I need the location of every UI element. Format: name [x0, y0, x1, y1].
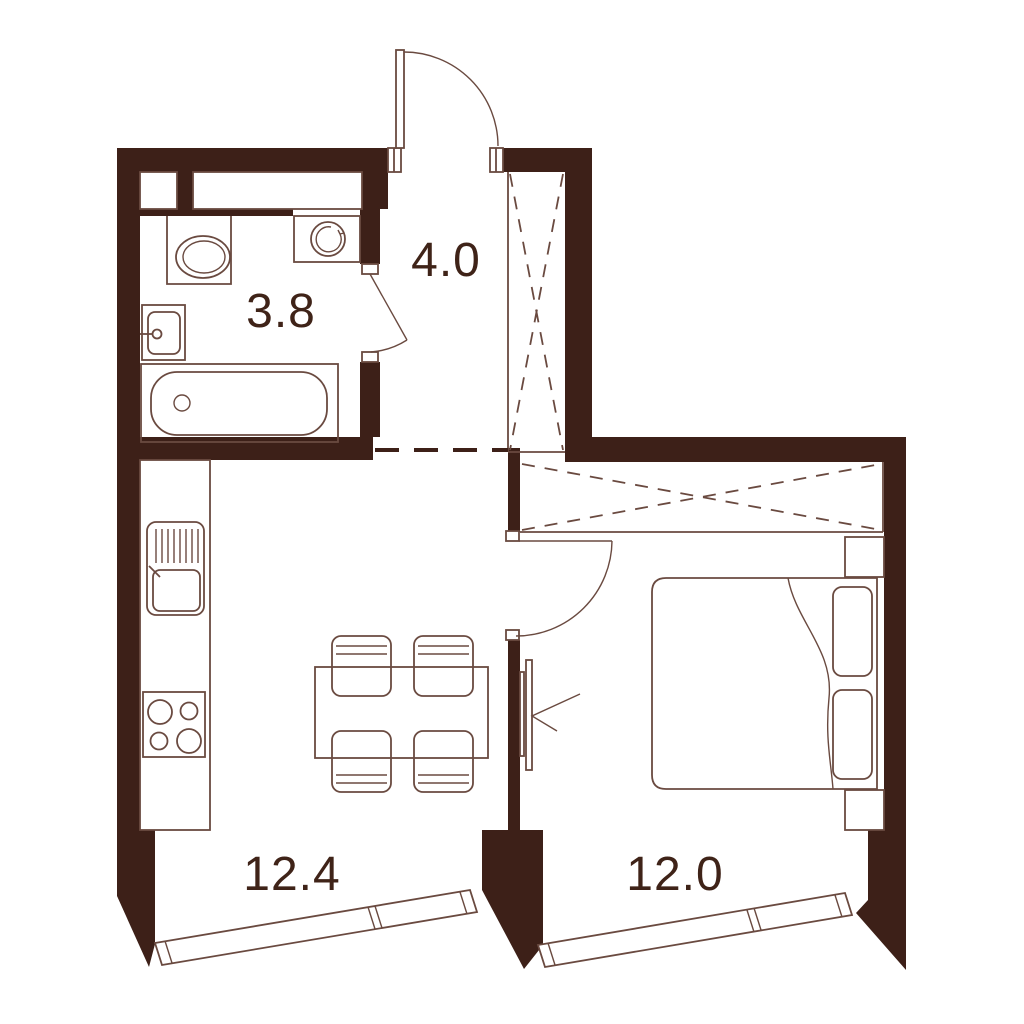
- door-frame: [362, 264, 378, 274]
- entry-door: [388, 50, 503, 172]
- faucet: [153, 330, 162, 339]
- stove: [143, 692, 205, 757]
- bottom-left-pier: [117, 830, 155, 967]
- kitchen-window: [155, 890, 477, 965]
- room-label-bedroom: 12.0: [626, 848, 723, 901]
- nightstand: [845, 790, 884, 830]
- drainer-lines: [156, 529, 198, 563]
- bathroom-sink: [140, 305, 185, 360]
- bed: [652, 578, 877, 789]
- outer-walls: [117, 148, 906, 970]
- room-label-hallway: 4.0: [411, 234, 481, 287]
- chair: [414, 636, 473, 696]
- kitchen-counter: [140, 460, 210, 830]
- nightstand: [845, 537, 884, 577]
- bedroom-door: [506, 531, 612, 640]
- washing-machine: [294, 216, 360, 262]
- dining-table: [315, 667, 488, 758]
- door-frame: [506, 630, 519, 640]
- hall-wardrobe: [508, 172, 565, 452]
- door-frame: [506, 531, 519, 541]
- entry-door-leaf: [396, 50, 404, 148]
- room-label-bathroom: 3.8: [246, 285, 316, 338]
- bedroom-wardrobe: [520, 462, 883, 532]
- kitchen-sink: [147, 522, 204, 615]
- shaft: [140, 172, 362, 209]
- room-label-kitchen-living: 12.4: [243, 848, 340, 901]
- bottom-center-pier: [482, 830, 543, 969]
- bottom-right-pier: [856, 830, 906, 970]
- bedroom-window: [538, 893, 852, 967]
- pillow: [833, 690, 872, 779]
- faucet: [149, 566, 160, 577]
- door-frame: [362, 352, 378, 362]
- bedroom-door-swing-arc: [516, 541, 612, 636]
- shaft-box: [140, 172, 177, 209]
- dining-set: [315, 636, 488, 792]
- bathroom-door-swing-arc: [371, 340, 407, 352]
- tv: [520, 660, 580, 770]
- bathroom-door: [362, 264, 407, 362]
- pillow: [833, 587, 872, 676]
- tv-bracket: [520, 672, 524, 756]
- floor-plan-page: 3.8 4.0 12.4 12.0: [0, 0, 1024, 1024]
- tv-direction-lines: [532, 694, 580, 731]
- drain: [174, 395, 190, 411]
- shaft-box: [193, 172, 362, 209]
- bathtub: [141, 364, 338, 442]
- toilet: [167, 216, 231, 284]
- floor-plan-svg: 3.8 4.0 12.4 12.0: [0, 0, 1024, 1024]
- entry-door-swing-arc: [404, 52, 498, 146]
- chair: [332, 731, 391, 792]
- tv-screen: [526, 660, 532, 770]
- blanket-edge: [788, 578, 833, 789]
- bathroom-door-leaf: [370, 274, 407, 340]
- chair: [414, 731, 473, 792]
- chair: [332, 636, 391, 696]
